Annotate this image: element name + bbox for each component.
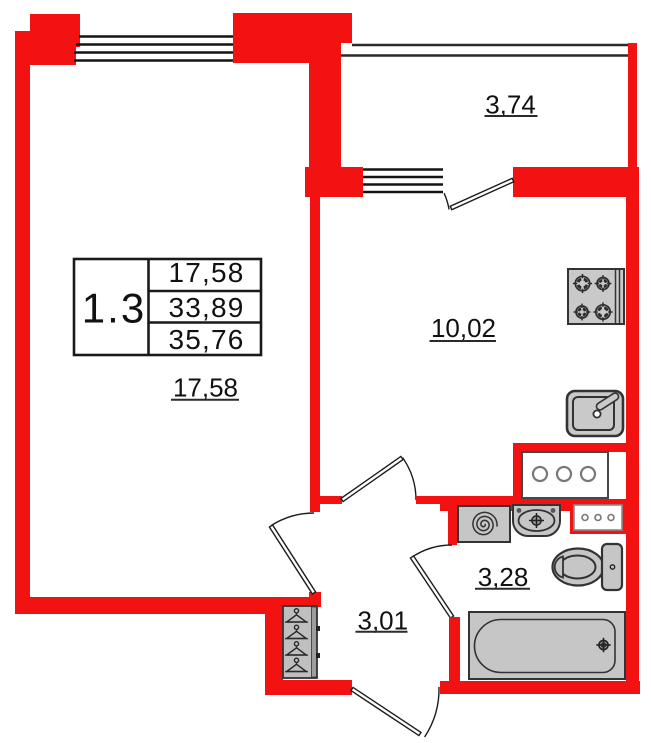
svg-text:17,58: 17,58 [173, 373, 238, 403]
svg-text:33,89: 33,89 [168, 292, 244, 323]
svg-text:1.3: 1.3 [82, 285, 146, 332]
svg-text:3,28: 3,28 [478, 562, 529, 592]
svg-text:17,58: 17,58 [168, 257, 244, 288]
svg-text:35,76: 35,76 [168, 324, 244, 355]
svg-text:10,02: 10,02 [431, 313, 496, 343]
